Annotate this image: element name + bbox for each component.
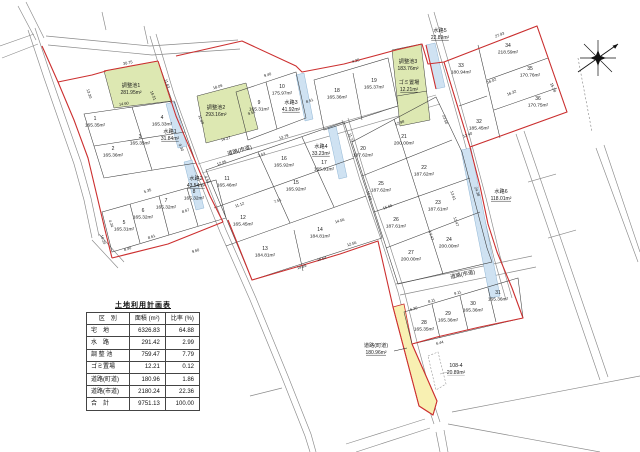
lot-area: 165.32m² bbox=[156, 205, 177, 211]
table-cell: 道路(町道) bbox=[87, 373, 130, 385]
road-west bbox=[0, 34, 38, 58]
road-v1 bbox=[28, 28, 124, 268]
feature-name: 調整池1 bbox=[122, 81, 141, 89]
block-lots-18-19 bbox=[314, 58, 398, 130]
lot-number: 26 bbox=[393, 217, 399, 223]
feature-area: 118.01m² bbox=[491, 196, 512, 202]
dimension-label: 19.89 bbox=[296, 263, 307, 270]
table-row: 道路(町道)180.961.86 bbox=[87, 373, 200, 385]
dimension-label: 8.40 bbox=[123, 245, 133, 252]
lot-area: 165.36m² bbox=[438, 318, 459, 324]
table-title: 土地利用計画表 bbox=[86, 300, 200, 310]
dimension-label: 9.40 bbox=[263, 71, 273, 78]
dimension-label: 7.51 bbox=[273, 197, 282, 204]
lot-area: 175.97m² bbox=[272, 91, 293, 97]
lot-number: 25 bbox=[378, 181, 384, 187]
lot-area: 165.37m² bbox=[364, 85, 385, 91]
lot-area: 165.46m² bbox=[217, 183, 238, 189]
lot-number: 27 bbox=[408, 250, 414, 256]
lot-area: 165.32m² bbox=[133, 215, 154, 221]
north-arrowhead bbox=[613, 44, 619, 49]
table-cell: 64.88 bbox=[165, 325, 199, 337]
town-road-strip bbox=[393, 304, 437, 415]
table-row: 調 整 池759.477.79 bbox=[87, 349, 200, 361]
feature-area: 41.92m² bbox=[282, 107, 301, 113]
feature-area: 33.23m² bbox=[312, 151, 331, 157]
lot-area: 185.45m² bbox=[469, 126, 490, 132]
block-lots-11-17 bbox=[206, 122, 382, 280]
lot-number: 4 bbox=[161, 115, 164, 121]
dimension-label: 15.28 bbox=[549, 82, 558, 93]
header-area: 面積 (m²) bbox=[129, 313, 165, 325]
table-row: 合 計9751.13100.00 bbox=[87, 398, 200, 410]
table-row: 宅 地6326.8364.88 bbox=[87, 325, 200, 337]
feature-name: 水路6 bbox=[494, 187, 507, 195]
feature-area: 43.54m² bbox=[187, 183, 206, 189]
block-outline bbox=[206, 122, 382, 280]
lot-number: 5 bbox=[123, 220, 126, 226]
lot-area: 165.36m² bbox=[103, 153, 124, 159]
block-dividers bbox=[266, 82, 277, 129]
block-outline bbox=[314, 58, 398, 130]
lot-area: 170.76m² bbox=[520, 73, 541, 79]
dimension-label: 8.51 bbox=[305, 97, 314, 104]
lot-area: 187.62m² bbox=[353, 153, 374, 159]
dimension-label: 8.67 bbox=[181, 207, 190, 214]
lot-number: 23 bbox=[435, 200, 441, 206]
lot-area: 165.35m² bbox=[130, 141, 151, 147]
dimension-label: 18.09 bbox=[212, 83, 223, 91]
dimension-label: 11.12 bbox=[234, 201, 245, 209]
lot-area: 165.36m² bbox=[463, 308, 484, 314]
feature-area: 12.21m² bbox=[400, 87, 419, 93]
table-header-row: 区 別 面積 (m²) 比率 (%) bbox=[87, 313, 200, 325]
lot-area: 165.45m² bbox=[233, 222, 254, 228]
dimension-label: 6.44 bbox=[435, 339, 444, 346]
dimension-label: 16.02 bbox=[486, 77, 497, 85]
lot-area: 165.36m² bbox=[327, 95, 348, 101]
dimension-label: 6.30 bbox=[409, 305, 418, 312]
lot-area: 180.94m² bbox=[451, 70, 472, 76]
dimension-label: 17.47 bbox=[427, 230, 435, 241]
lot-number: 20 bbox=[360, 146, 366, 152]
lot-number: 15 bbox=[293, 180, 299, 186]
lot-area: 218.59m² bbox=[498, 50, 519, 56]
lot-area: 200.00m² bbox=[439, 244, 460, 250]
dimension-label: 4.25 bbox=[351, 57, 360, 64]
header-category: 区 別 bbox=[87, 313, 130, 325]
lot-area: 200.00m² bbox=[401, 257, 422, 263]
table-cell: 水 路 bbox=[87, 337, 130, 349]
dimension-label: 18.64 bbox=[316, 255, 328, 263]
lot-number: 22 bbox=[421, 165, 427, 171]
dimension-label: 16.32 bbox=[506, 89, 517, 97]
lot-number: 3 bbox=[139, 134, 142, 140]
dimension-label: 12.47 bbox=[452, 216, 460, 227]
feature-name: 水路5 bbox=[433, 26, 446, 34]
city-road-label: 道路(市道) bbox=[449, 267, 475, 280]
lot-area: 170.75m² bbox=[528, 103, 549, 109]
dimension-label: 13.30 bbox=[86, 88, 94, 100]
table-cell: 759.47 bbox=[129, 349, 165, 361]
lot-area: 165.33m² bbox=[152, 122, 173, 128]
dimension-label: 7.53 bbox=[257, 151, 266, 158]
feature-name: 108-4 bbox=[449, 363, 462, 369]
lot-number: 24 bbox=[446, 237, 452, 243]
dimension-label: 12.56 bbox=[346, 240, 357, 247]
dimension-label: 14.56 bbox=[334, 217, 345, 224]
lot-number: 9 bbox=[258, 100, 261, 106]
feature-name: 水路3 bbox=[284, 98, 297, 106]
parcel-108-4-outline bbox=[428, 352, 446, 390]
dimension-label: 27.93 bbox=[494, 31, 505, 39]
table-cell: 291.42 bbox=[129, 337, 165, 349]
lot-area: 165.92m² bbox=[274, 163, 295, 169]
feature-area: 180.96m² bbox=[365, 350, 386, 356]
table-cell: 2.99 bbox=[165, 337, 199, 349]
feature-area: 22.89m² bbox=[431, 35, 450, 41]
table-cell: 7.79 bbox=[165, 349, 199, 361]
header-ratio: 比率 (%) bbox=[165, 313, 199, 325]
cadastral-plan-page: 1165.35m²2165.36m²3165.35m²4165.33m²5165… bbox=[0, 0, 640, 452]
table-cell: 調 整 池 bbox=[87, 349, 130, 361]
table-row: 道路(市道)2180.2422.36 bbox=[87, 386, 200, 398]
dimension-label: 13.61 bbox=[449, 190, 457, 201]
north-compass-star-icon bbox=[578, 40, 618, 76]
lot-area: 165.35m² bbox=[414, 327, 435, 333]
dimension-label: 9.60 bbox=[191, 247, 201, 254]
feature-name: 水路2 bbox=[189, 174, 202, 182]
lot-number: 21 bbox=[401, 134, 407, 140]
lot-area: 165.36m² bbox=[488, 297, 509, 303]
dimension-label: 5.35 bbox=[143, 187, 152, 194]
table-cell: 22.36 bbox=[165, 386, 199, 398]
table-cell: 1.86 bbox=[165, 373, 199, 385]
lot-number: 12 bbox=[240, 215, 246, 221]
lot-area: 187.62m² bbox=[414, 172, 435, 178]
lot-number: 1 bbox=[94, 116, 97, 122]
lot-number: 19 bbox=[371, 78, 377, 84]
land-use-plan-table: 土地利用計画表 区 別 面積 (m²) 比率 (%) 宅 地6326.8364.… bbox=[86, 300, 200, 411]
table-cell: 12.21 bbox=[129, 361, 165, 373]
table-cell: 100.00 bbox=[165, 398, 199, 410]
table-cell: 0.12 bbox=[165, 361, 199, 373]
water-5-strip bbox=[426, 43, 445, 89]
road-east-dashed bbox=[578, 58, 592, 132]
dimension-label: 30.75 bbox=[122, 59, 133, 66]
feature-area: 20.89m² bbox=[447, 370, 466, 376]
lot-number: 31 bbox=[495, 290, 501, 296]
lot-number: 28 bbox=[421, 320, 427, 326]
lot-number: 11 bbox=[224, 176, 229, 182]
lot-number: 29 bbox=[445, 311, 451, 317]
feature-name: 水路1 bbox=[163, 127, 176, 135]
feature-area: 293.16m² bbox=[205, 112, 226, 118]
lot-number: 16 bbox=[281, 156, 287, 162]
lot-area: 165.31m² bbox=[114, 227, 135, 233]
table-cell: 2180.24 bbox=[129, 386, 165, 398]
lot-number: 2 bbox=[112, 146, 115, 152]
lot-area: 184.81m² bbox=[310, 234, 331, 240]
lot-number: 10 bbox=[279, 84, 285, 90]
table-cell: 9751.13 bbox=[129, 398, 165, 410]
lot-number: 14 bbox=[317, 227, 323, 233]
feature-name: 道路(町道) bbox=[364, 341, 388, 349]
feature-name: 調整池3 bbox=[399, 57, 418, 65]
table-cell: 宅 地 bbox=[87, 325, 130, 337]
lot-number: 36 bbox=[535, 96, 541, 102]
lot-area: 200.00m² bbox=[394, 141, 415, 147]
lot-number: 6 bbox=[142, 208, 145, 214]
lot-number: 32 bbox=[476, 119, 482, 125]
table-cell: 180.96 bbox=[129, 373, 165, 385]
feature-area: 281.95m² bbox=[120, 90, 141, 96]
feature-name: 水路4 bbox=[314, 142, 327, 150]
roads-south-junction bbox=[346, 376, 640, 452]
lot-area: 187.61m² bbox=[428, 207, 449, 213]
lot-number: 17 bbox=[321, 160, 327, 166]
lot-area: 187.61m² bbox=[386, 224, 407, 230]
table-row: ゴミ置場12.210.12 bbox=[87, 361, 200, 373]
lot-number: 33 bbox=[458, 63, 464, 69]
lot-number: 8 bbox=[193, 189, 196, 195]
feature-area: 183.76m² bbox=[397, 66, 418, 72]
lot-area: 165.92m² bbox=[286, 187, 307, 193]
lot-area: 187.62m² bbox=[371, 188, 392, 194]
feature-name: ゴミ置場 bbox=[399, 78, 420, 86]
lot-area: 165.35m² bbox=[85, 123, 106, 129]
table-cell: 6326.83 bbox=[129, 325, 165, 337]
feature-area: 31.84m² bbox=[161, 136, 180, 142]
lot-number: 35 bbox=[527, 66, 533, 72]
lot-number: 34 bbox=[505, 43, 511, 49]
table-row: 水 路291.422.99 bbox=[87, 337, 200, 349]
lot-number: 13 bbox=[262, 246, 268, 252]
lot-area: 184.81m² bbox=[255, 253, 276, 259]
dimension-label: 12.05 bbox=[216, 159, 227, 167]
dimension-label: 15.65 bbox=[382, 203, 393, 211]
table-cell: 合 計 bbox=[87, 398, 130, 410]
lot-number: 18 bbox=[334, 88, 340, 94]
road-northwest bbox=[18, 2, 44, 40]
lot-area: 165.32m² bbox=[184, 196, 205, 202]
lot-number: 30 bbox=[470, 301, 476, 307]
table-cell: 道路(市道) bbox=[87, 386, 130, 398]
lot-number: 7 bbox=[165, 198, 168, 204]
feature-name: 調整池2 bbox=[207, 103, 226, 111]
block-dividers bbox=[353, 73, 362, 120]
table-cell: ゴミ置場 bbox=[87, 361, 130, 373]
lot-area: 165.91m² bbox=[314, 167, 335, 173]
